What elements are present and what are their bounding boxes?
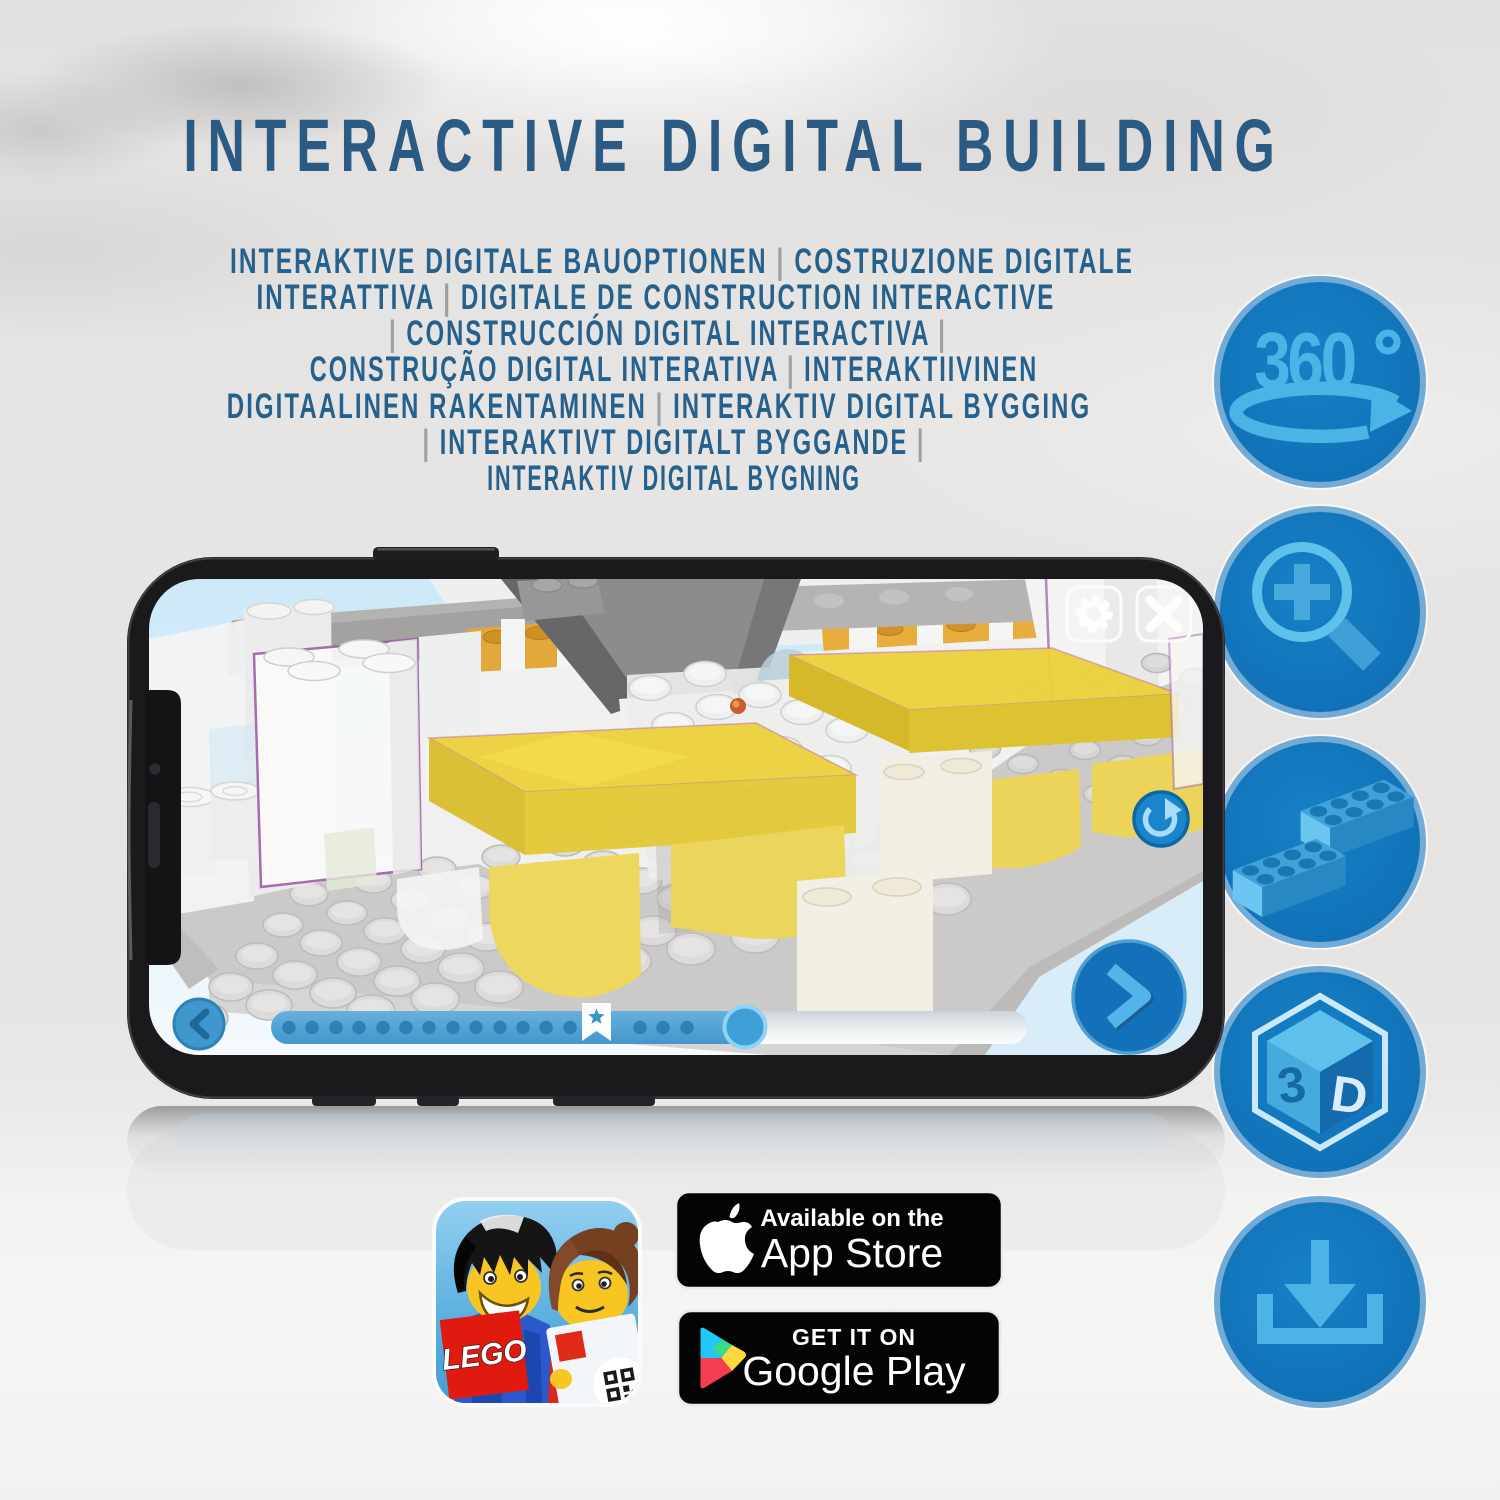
svg-text:D: D — [1328, 1065, 1372, 1125]
svg-text:Available on the: Available on the — [760, 1205, 943, 1232]
svg-text:GET IT ON: GET IT ON — [792, 1324, 916, 1350]
svg-text:360: 360 — [1254, 316, 1354, 406]
svg-text:App Store: App Store — [761, 1230, 943, 1276]
svg-text:Google Play: Google Play — [742, 1348, 966, 1394]
